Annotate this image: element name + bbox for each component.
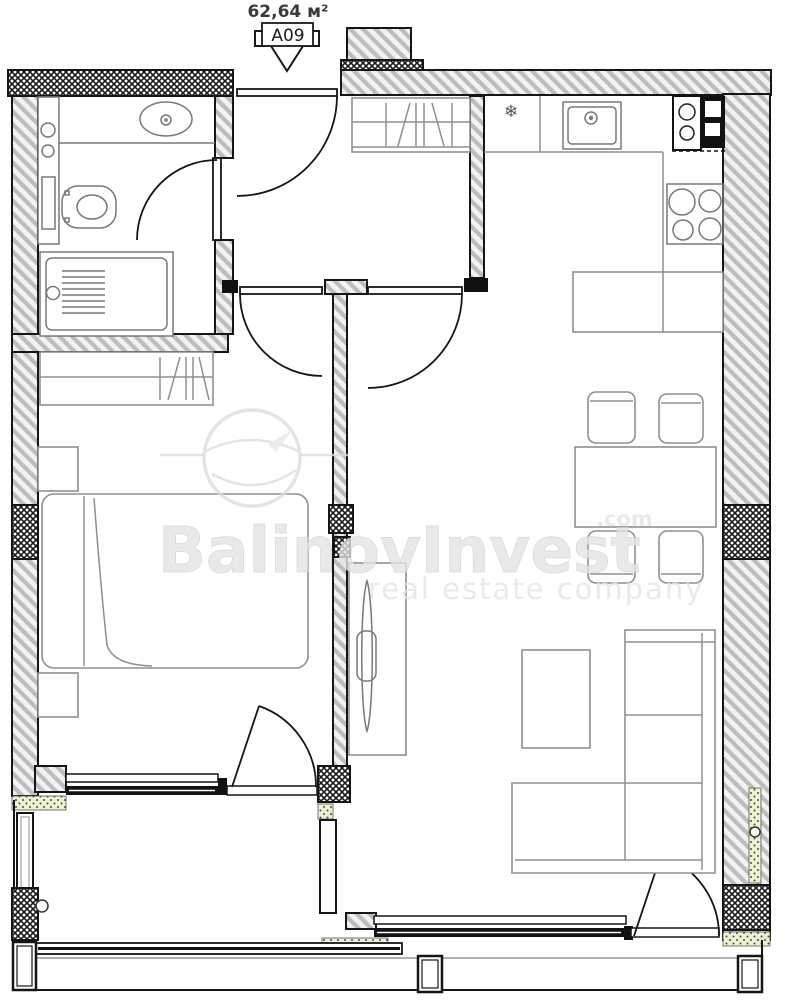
chair (659, 394, 703, 443)
terrace-column (738, 956, 762, 992)
nightstand (38, 447, 78, 491)
area-label: 62,64 м² (247, 2, 328, 22)
watermark-domain: .com (596, 507, 653, 531)
entrance-door (237, 89, 337, 196)
nightstand (38, 673, 78, 717)
living-door (368, 287, 462, 388)
floor-plan: 62,64 м² A09 (0, 0, 785, 1000)
stove (667, 184, 723, 244)
drain-pipe (36, 900, 48, 912)
hall-wardrobe (352, 98, 470, 152)
chair (588, 392, 635, 443)
terrace-column (418, 956, 442, 992)
balcony-divider (320, 820, 336, 913)
bathroom-sink (140, 102, 192, 136)
kitchen-island (573, 272, 723, 332)
ventilation-shaft (672, 96, 727, 151)
bedroom-door (240, 287, 322, 376)
kitchen: ❄ (484, 96, 727, 332)
plan-header: 62,64 м² A09 (247, 2, 328, 71)
bathroom (38, 97, 215, 336)
bedroom-wardrobe (40, 352, 213, 405)
terrace-column (13, 942, 36, 990)
living-window (374, 916, 626, 924)
hall (352, 98, 470, 152)
toilet (62, 186, 116, 228)
watermark-logo-icon (160, 410, 348, 506)
living-room (349, 392, 716, 873)
bathroom-door (137, 158, 221, 240)
unit-label: A09 (271, 26, 304, 46)
bedroom-window (66, 774, 218, 782)
kitchen-sink (563, 102, 621, 149)
coffee-table (522, 650, 590, 748)
shower (40, 252, 173, 336)
plumbing-niche (38, 97, 59, 244)
fridge-snowflake-icon: ❄ (504, 102, 518, 122)
floor-plan-page: 62,64 м² A09 (0, 0, 785, 1000)
bedroom-balcony-door (232, 706, 316, 787)
watermark-tagline: real estate company (368, 572, 704, 606)
